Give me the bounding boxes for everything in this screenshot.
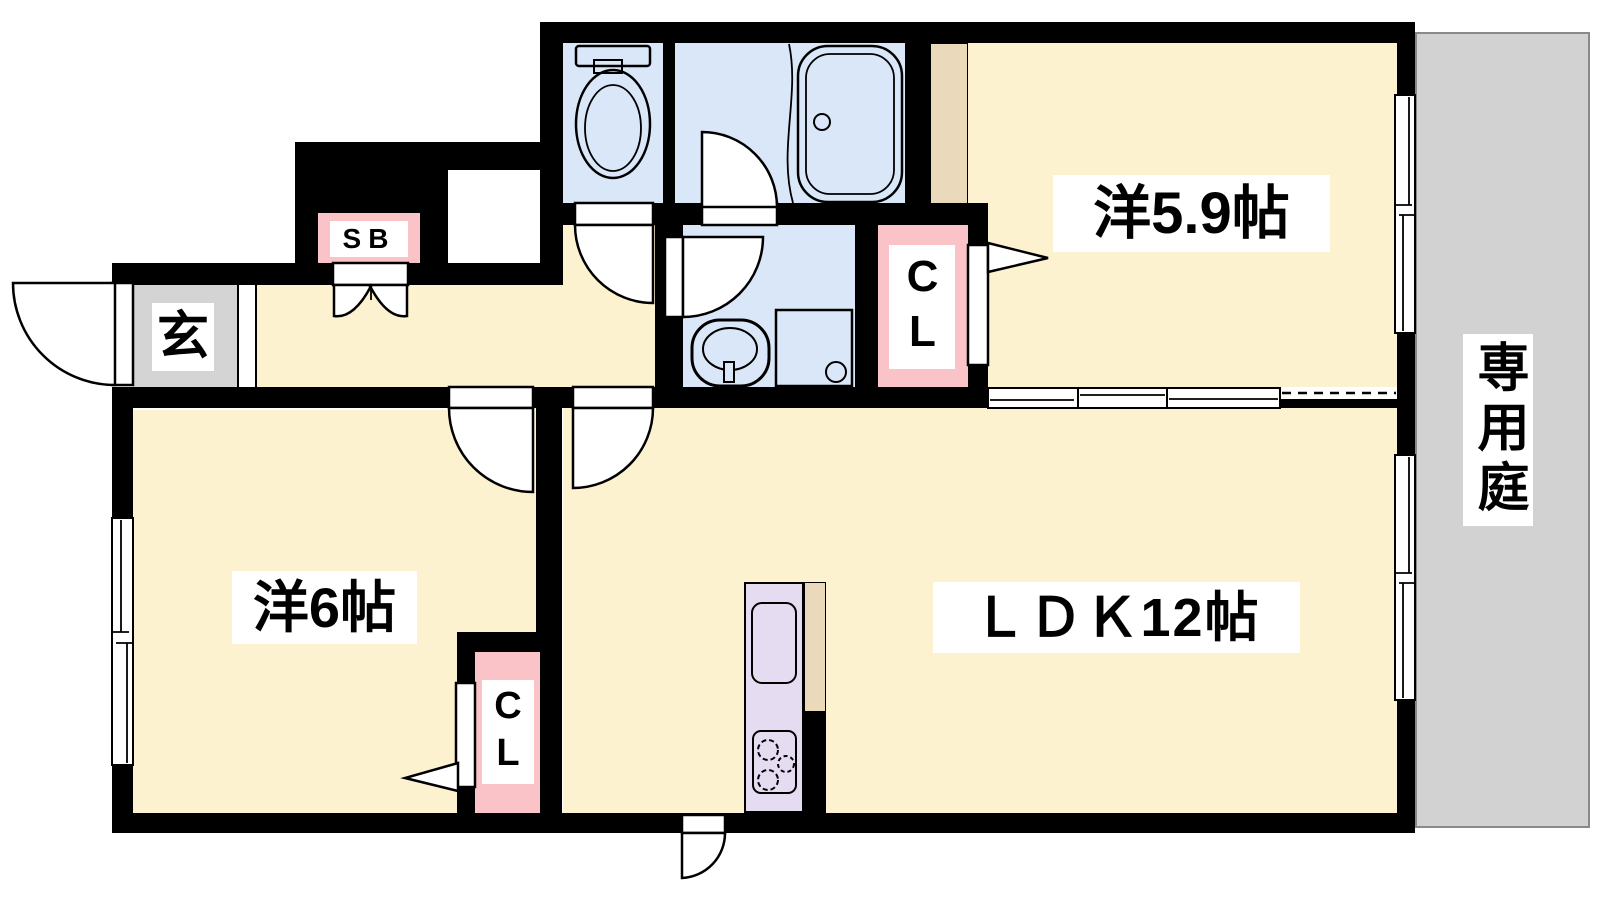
floor-plan: 洋5.9帖 洋6帖 ＬＤＫ12帖 専用庭 玄 SB CL CL xyxy=(0,0,1600,900)
window-room59-east xyxy=(1395,95,1415,333)
closet-upper-door-leaf xyxy=(968,245,988,365)
ldk-door-opening xyxy=(573,387,653,408)
stove-icon xyxy=(753,731,796,793)
ldk-south-door-opening xyxy=(682,815,725,833)
room6-door-swing xyxy=(449,408,533,492)
sliding-panel-1 xyxy=(988,388,1078,408)
ldk-door-swing xyxy=(573,408,653,488)
ldk-south-door-swing xyxy=(682,833,725,878)
closet-upper-arrow xyxy=(988,243,1048,272)
shoebox-label: SB xyxy=(330,221,408,257)
toilet-door-swing xyxy=(575,225,653,303)
washing-machine-icon xyxy=(776,310,852,386)
washroom-door-leaf xyxy=(665,237,683,317)
room-5-9-label: 洋5.9帖 xyxy=(1053,175,1330,252)
closet-lower-arrow xyxy=(405,763,458,791)
plan-linework xyxy=(0,0,1600,900)
shoebox-fold-leaf-right xyxy=(371,285,407,316)
room-6-label: 洋6帖 xyxy=(232,571,417,644)
window-room6-west xyxy=(112,518,133,765)
garden-label: 専用庭 xyxy=(1463,334,1533,526)
closet-upper-label: CL xyxy=(889,245,955,369)
sliding-panel-2 xyxy=(1078,388,1167,408)
washbasin-icon xyxy=(692,320,769,386)
shoebox-door-top xyxy=(333,263,408,285)
shoebox-fold-leaf-left xyxy=(334,285,370,316)
bath-door-swing xyxy=(702,132,777,207)
room6-door-opening xyxy=(449,387,533,408)
kitchen-sink-icon xyxy=(752,603,796,683)
toilet-door-opening xyxy=(575,203,653,225)
closet-lower-label: CL xyxy=(482,680,534,784)
bathtub-icon xyxy=(788,44,902,203)
toilet-icon xyxy=(576,46,650,178)
front-door-swing xyxy=(13,283,115,385)
ldk-label: ＬＤＫ12帖 xyxy=(933,582,1300,653)
entrance-label: 玄 xyxy=(152,303,214,371)
sliding-panel-3 xyxy=(1167,388,1280,408)
window-ldk-east xyxy=(1395,455,1415,700)
washroom-door-swing xyxy=(683,237,763,317)
